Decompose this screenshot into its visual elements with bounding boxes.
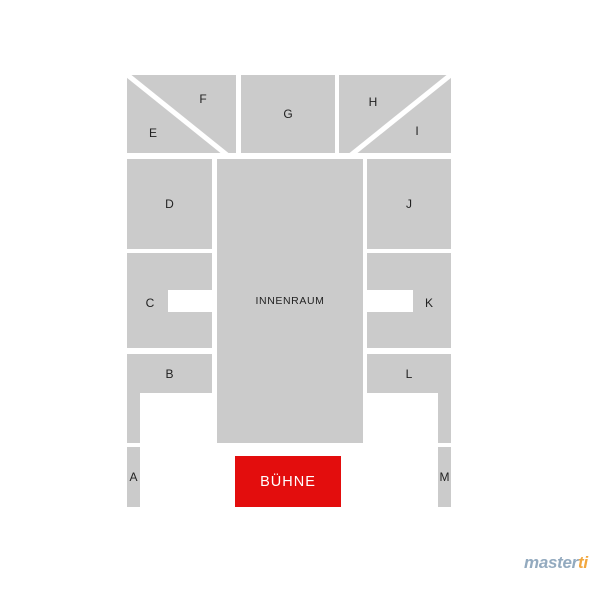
section-l[interactable]: L: [367, 354, 451, 393]
section-innenraum[interactable]: INNENRAUM: [217, 159, 363, 443]
section-m-label: M: [440, 471, 450, 483]
section-e-label: E: [149, 127, 157, 139]
section-hi-block[interactable]: H I: [339, 75, 451, 153]
section-ef-block[interactable]: E F: [127, 75, 236, 153]
section-b-extension[interactable]: [127, 393, 140, 443]
section-l-extension[interactable]: [438, 393, 451, 443]
section-g[interactable]: G: [241, 75, 335, 153]
section-h-label: H: [369, 96, 378, 108]
brand-logo-accent-text: ti: [578, 553, 588, 572]
brand-logo-primary-text: master: [524, 553, 578, 572]
stage-label: BÜHNE: [260, 474, 316, 490]
section-c-notch: [168, 290, 212, 312]
section-k-label: K: [425, 297, 433, 309]
stage-block: BÜHNE: [235, 456, 341, 507]
section-f-label: F: [199, 93, 206, 105]
section-a-label: A: [129, 471, 137, 483]
section-d[interactable]: D: [127, 159, 212, 249]
brand-logo[interactable]: masterti: [524, 553, 588, 573]
section-g-label: G: [283, 108, 292, 120]
section-j[interactable]: J: [367, 159, 451, 249]
section-m[interactable]: M: [438, 447, 451, 507]
section-d-label: D: [165, 198, 174, 210]
seatmap-canvas: E F G H I D INNENRAUM J C K B L: [0, 0, 600, 600]
section-j-label: J: [406, 198, 412, 210]
diagonal-divider-icon: [339, 75, 451, 153]
diagonal-divider-icon: [127, 75, 236, 153]
section-k-notch: [367, 290, 413, 312]
section-i-label: I: [415, 125, 418, 137]
section-b-label: B: [165, 368, 173, 380]
section-a[interactable]: A: [127, 447, 140, 507]
section-c-label: C: [146, 297, 155, 309]
section-b[interactable]: B: [127, 354, 212, 393]
section-l-label: L: [406, 368, 413, 380]
section-k[interactable]: K: [367, 253, 451, 348]
section-c[interactable]: C: [127, 253, 212, 348]
innenraum-label: INNENRAUM: [256, 295, 325, 307]
